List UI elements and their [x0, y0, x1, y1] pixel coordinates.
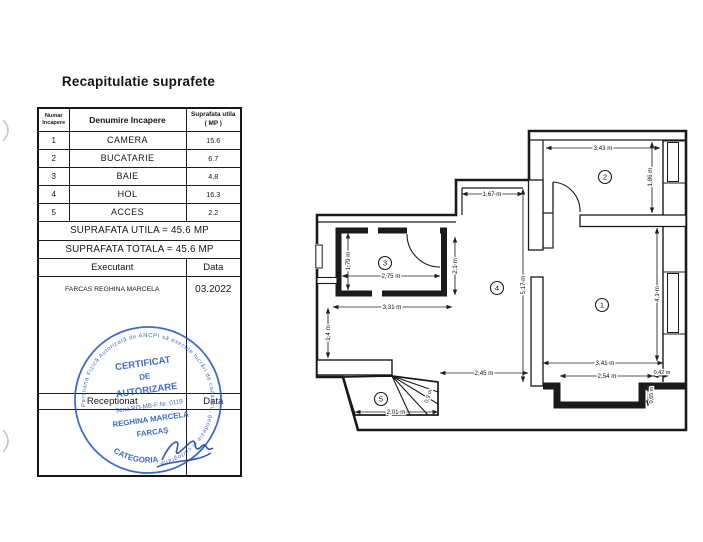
page-title: Recapitulatie suprafete — [37, 74, 240, 89]
wall-opening — [368, 226, 378, 236]
room-number-3: 3 — [379, 257, 392, 270]
scanned-document-page: Recapitulatie suprafete Numar Incapere D… — [0, 0, 703, 542]
receptionat-header-row: Receptionat Data — [38, 393, 241, 409]
window — [316, 245, 322, 268]
table-row: 3 BAIE 4.8 — [38, 167, 241, 185]
room-number-4: 4 — [491, 282, 504, 295]
table-row: 4 HOL 16.3 — [38, 185, 241, 203]
header-denumire: Denumire Incapere — [69, 108, 186, 131]
executant-date: 03.2022 — [186, 276, 241, 393]
table-row: 2 BUCATARIE 6.7 — [38, 149, 241, 167]
table-header-row: Numar Incapere Denumire Incapere Suprafa… — [38, 108, 241, 131]
svg-text:4: 4 — [495, 284, 499, 293]
dimension-label: 1,86 m — [647, 168, 654, 187]
wall — [580, 215, 686, 227]
door-arc — [407, 234, 440, 267]
dimension-label: 0,9 m — [424, 388, 434, 403]
wall-opening — [372, 289, 382, 299]
dimension-label: 2,01 m — [387, 409, 406, 416]
surface-recap-table: Numar Incapere Denumire Incapere Suprafa… — [37, 107, 242, 477]
svg-text:3: 3 — [383, 259, 387, 268]
total-totala-row: SUPRAFATA TOTALA = 45.6 MP — [38, 240, 241, 258]
room-number-1: 1 — [596, 299, 609, 312]
receptionat-label: Receptionat — [38, 393, 186, 409]
receptionat-row — [38, 409, 241, 476]
table-row: 5 ACCES 2.2 — [38, 203, 241, 221]
wall — [543, 213, 553, 248]
dimension-label: 3,31 m — [383, 304, 402, 311]
dimension-label: 3,43 m — [594, 145, 613, 152]
door-opening — [407, 226, 440, 236]
dimension-label: 1,4 m — [325, 325, 332, 340]
executant-label: Executant — [38, 258, 186, 276]
dimension-label: 2,75 m — [382, 273, 401, 280]
dimension-label: 4,1 m — [654, 286, 661, 301]
dimension-label: 0,65 m — [649, 386, 655, 403]
floor-plan: 3,43 m 1,86 m 1,67 m 1,79 m 2,75 m 2,1 m… — [295, 105, 695, 445]
executant-row: FARCAS REGHINA MARCELA 03.2022 — [38, 276, 241, 393]
dimension-label: 2,45 m — [475, 370, 494, 377]
header-numar-incapere: Numar Incapere — [38, 108, 69, 131]
window — [668, 274, 679, 333]
table-row: 1 CAMERA 15.6 — [38, 131, 241, 149]
executant-header-row: Executant Data — [38, 258, 241, 276]
svg-text:1: 1 — [600, 301, 604, 310]
room-number-5: 5 — [375, 393, 388, 406]
svg-text:5: 5 — [379, 395, 383, 404]
wall — [317, 360, 392, 375]
dimension-label: 5,17 m — [520, 276, 527, 295]
wall-spine-upper — [529, 180, 544, 250]
dimension-label: 0,42 m — [654, 370, 671, 376]
door-arc — [553, 182, 580, 212]
svg-text:2: 2 — [603, 173, 607, 182]
dimension-label: 2,54 m — [598, 373, 617, 380]
wall — [317, 278, 337, 284]
building-outline — [317, 131, 686, 430]
executant-data-label: Data — [186, 258, 241, 276]
receptionat-data-label: Data — [186, 393, 241, 409]
total-utila-row: SUPRAFATA UTILA = 45.6 MP — [38, 221, 241, 240]
executant-name: FARCAS REGHINA MARCELA — [38, 276, 186, 393]
dimension-label: 1,79 m — [345, 252, 352, 271]
wall — [543, 386, 686, 405]
dimension-label: 2,1 m — [452, 258, 459, 273]
header-suprafata: Suprafata utila ( MP ) — [186, 108, 241, 131]
wall-spine-lower — [531, 277, 543, 386]
dimension-label: 1,67 m — [483, 191, 502, 198]
dimension-label: 3,41 m — [596, 360, 615, 367]
window — [668, 143, 679, 182]
room-number-2: 2 — [599, 171, 612, 184]
